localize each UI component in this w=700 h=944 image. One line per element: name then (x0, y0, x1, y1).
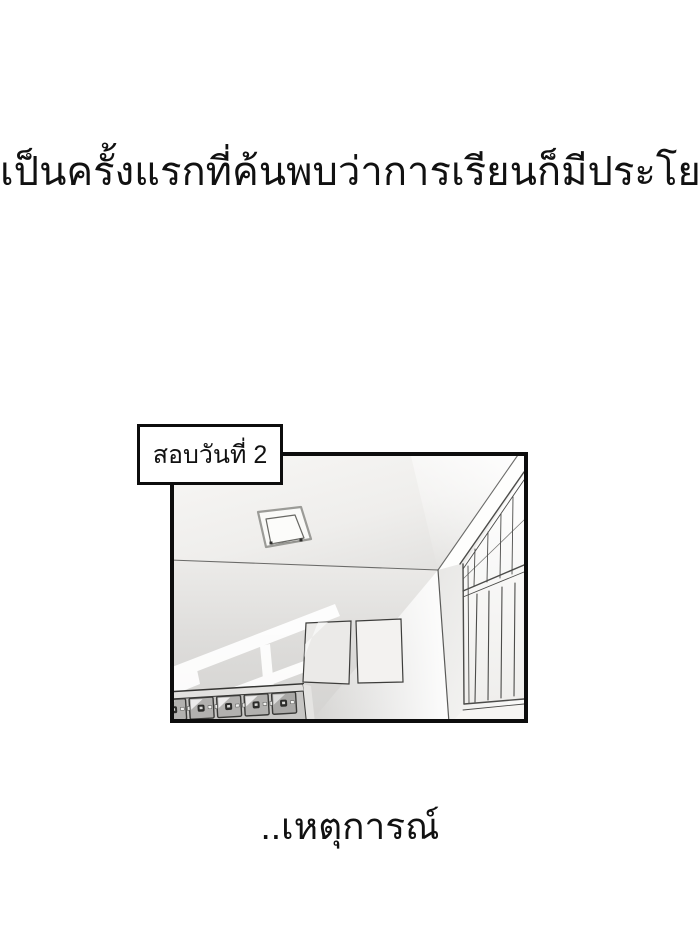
panel-label-text: สอบวันที่ 2 (153, 435, 268, 475)
scene-panel (170, 452, 528, 723)
lockers (170, 684, 315, 723)
picture-frame-left (303, 621, 351, 684)
picture-frame-right (356, 619, 403, 683)
top-caption: เป็นครั้งแรกที่ค้นพบว่าการเรียนก็มีประโย… (0, 144, 700, 200)
locker-door (269, 692, 296, 714)
panel-label-box: สอบวันที่ 2 (137, 424, 283, 485)
locker-door (242, 694, 269, 716)
locker-door (187, 697, 214, 719)
ceiling-light-fixture (258, 507, 311, 547)
locker-door (214, 695, 241, 717)
classroom-illustration (170, 452, 528, 723)
bottom-caption: ..เหตุการณ์ (0, 801, 700, 853)
webtoon-page: เป็นครั้งแรกที่ค้นพบว่าการเรียนก็มีประโย… (0, 0, 700, 944)
